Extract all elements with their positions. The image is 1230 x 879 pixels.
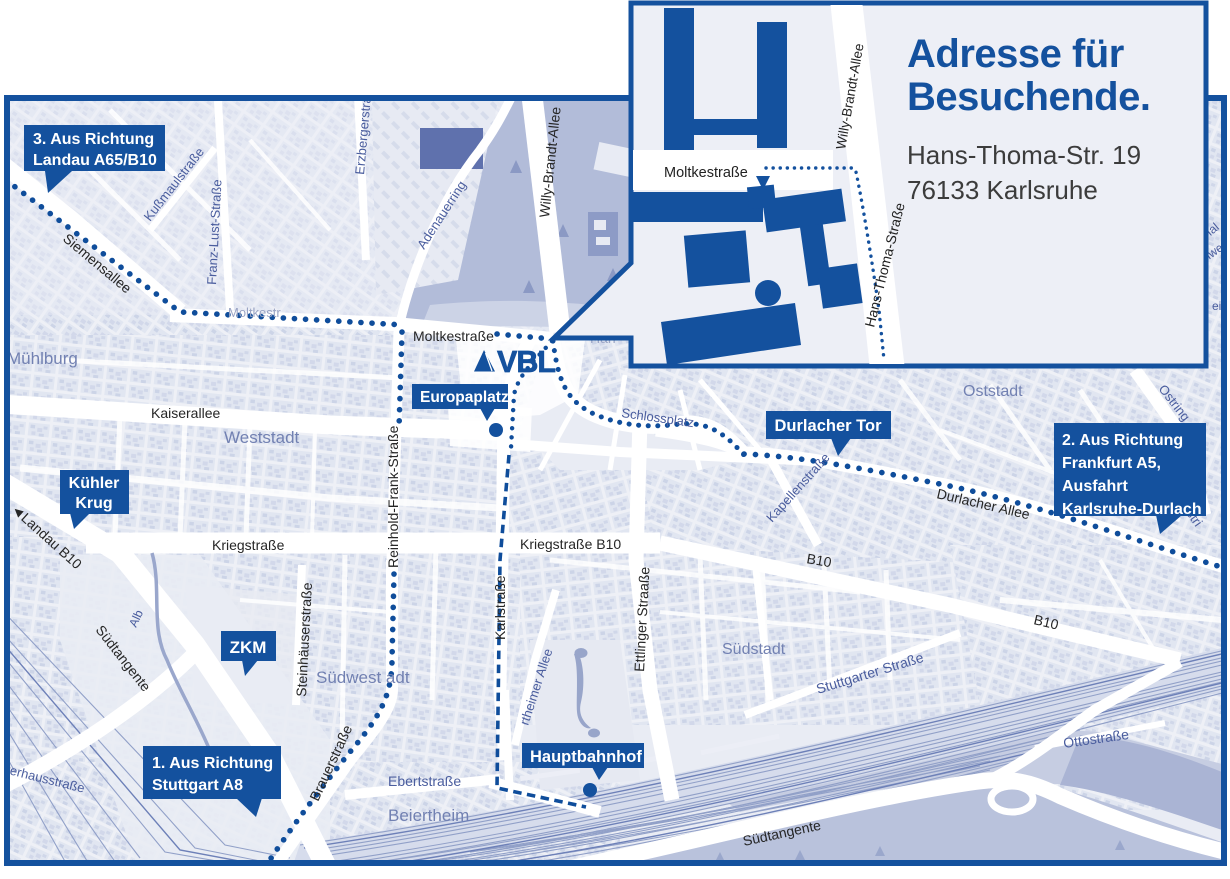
svg-text:Moltkestraße: Moltkestraße xyxy=(413,328,494,344)
svg-text:Südwest adt: Südwest adt xyxy=(316,668,410,687)
svg-text:Adresse für: Adresse für xyxy=(907,32,1124,76)
svg-text:Beiertheim: Beiertheim xyxy=(388,806,469,825)
svg-text:Ausfahrt: Ausfahrt xyxy=(1062,478,1128,495)
svg-text:Südstadt: Südstadt xyxy=(722,641,786,658)
svg-text:Oststadt: Oststadt xyxy=(963,383,1023,400)
svg-text:Kriegstraße B10: Kriegstraße B10 xyxy=(520,536,621,552)
svg-text:Europaplatz: Europaplatz xyxy=(420,389,509,406)
svg-text:Kriegstraße: Kriegstraße xyxy=(212,537,285,553)
svg-text:Hauptbahnhof: Hauptbahnhof xyxy=(530,748,642,766)
svg-text:Weststadt: Weststadt xyxy=(224,428,300,447)
svg-text:Stuttgart A8: Stuttgart A8 xyxy=(152,777,243,794)
svg-text:3. Aus Richtung: 3. Aus Richtung xyxy=(33,131,154,148)
svg-text:2. Aus Richtung: 2. Aus Richtung xyxy=(1062,432,1183,449)
svg-text:Landau A65/B10: Landau A65/B10 xyxy=(33,152,157,169)
svg-text:Krug: Krug xyxy=(75,495,112,512)
svg-text:Moltkestraße: Moltkestraße xyxy=(664,165,748,181)
svg-text:Frankfurt A5,: Frankfurt A5, xyxy=(1062,455,1161,472)
svg-text:1. Aus Richtung: 1. Aus Richtung xyxy=(152,755,273,772)
svg-text:Karlstraße: Karlstraße xyxy=(492,575,508,640)
svg-text:Kühler: Kühler xyxy=(69,475,120,492)
svg-text:Kaiserallee: Kaiserallee xyxy=(151,405,220,421)
svg-text:Hans-Thoma-Str. 19: Hans-Thoma-Str. 19 xyxy=(907,140,1141,170)
svg-text:76133 Karlsruhe: 76133 Karlsruhe xyxy=(907,175,1098,205)
svg-text:Mühlburg: Mühlburg xyxy=(7,349,78,368)
svg-text:Reinhold-Frank-Straße: Reinhold-Frank-Straße xyxy=(385,425,401,568)
svg-text:VBL: VBL xyxy=(497,345,555,379)
svg-text:ZKM: ZKM xyxy=(230,638,267,657)
svg-text:Besuchende.: Besuchende. xyxy=(907,75,1150,119)
svg-text:Moltkestr: Moltkestr xyxy=(228,305,281,320)
svg-text:Durlacher Tor: Durlacher Tor xyxy=(775,417,883,435)
svg-text:Karlsruhe-Durlach: Karlsruhe-Durlach xyxy=(1062,501,1202,518)
svg-text:Ebertstraße: Ebertstraße xyxy=(388,773,461,789)
